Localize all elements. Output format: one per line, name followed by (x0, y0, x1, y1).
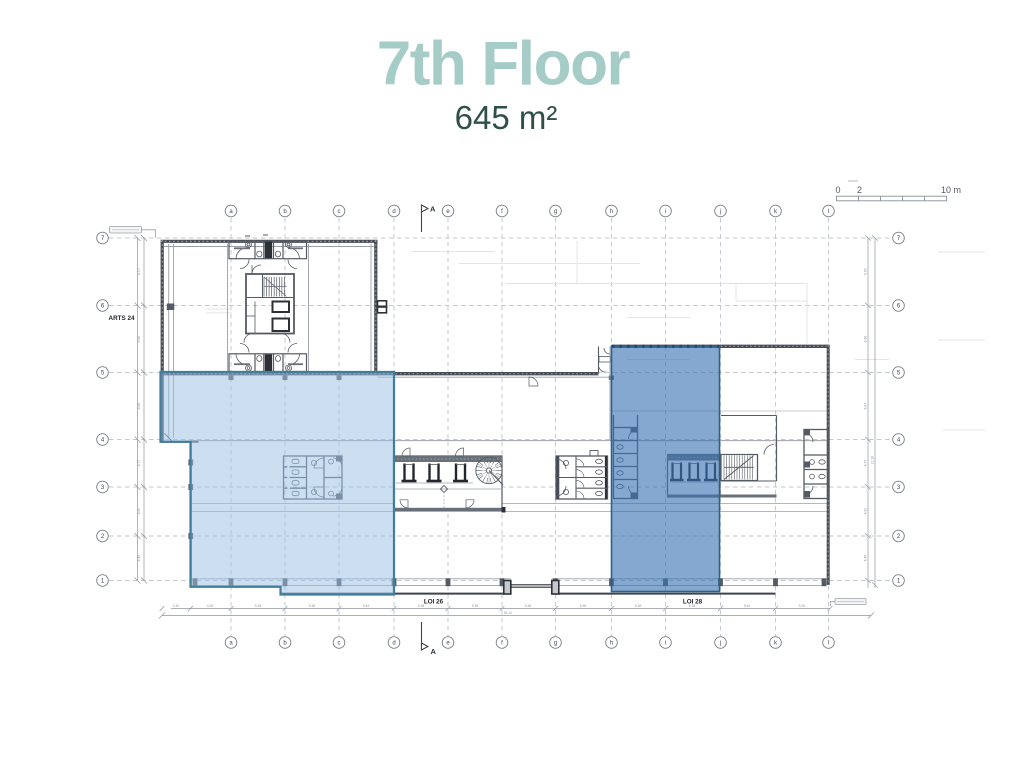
svg-text:h: h (610, 209, 613, 215)
svg-text:5.38: 5.38 (255, 604, 262, 608)
svg-text:6.67: 6.67 (864, 403, 868, 410)
svg-text:4.90: 4.90 (864, 508, 868, 515)
svg-text:4.90: 4.90 (137, 508, 141, 515)
svg-text:ARTS 24: ARTS 24 (109, 315, 135, 322)
svg-text:l: l (828, 641, 829, 647)
svg-text:LOI 28: LOI 28 (683, 599, 703, 606)
svg-text:i: i (665, 209, 666, 215)
svg-text:c: c (338, 641, 341, 647)
svg-text:j: j (719, 641, 721, 647)
svg-text:5.30: 5.30 (799, 604, 806, 608)
svg-text:5.38: 5.38 (472, 604, 479, 608)
svg-text:5.38: 5.38 (525, 604, 532, 608)
svg-text:8.10: 8.10 (137, 268, 141, 275)
svg-text:5.44: 5.44 (363, 604, 370, 608)
svg-text:l: l (828, 209, 829, 215)
svg-text:4.45: 4.45 (137, 555, 141, 562)
svg-text:4.45: 4.45 (864, 555, 868, 562)
svg-text:c: c (338, 209, 341, 215)
svg-text:6.67: 6.67 (864, 268, 868, 275)
svg-text:21.26: 21.26 (871, 456, 875, 465)
svg-text:A: A (431, 647, 437, 656)
svg-text:2: 2 (857, 185, 862, 195)
svg-text:6.66: 6.66 (137, 336, 141, 343)
svg-text:A: A (430, 205, 436, 214)
svg-text:5.44: 5.44 (744, 604, 751, 608)
svg-text:d: d (392, 641, 395, 647)
svg-text:4.77: 4.77 (864, 460, 868, 467)
svg-text:6.66: 6.66 (137, 403, 141, 410)
svg-text:d: d (392, 209, 395, 215)
svg-text:7th Floor: 7th Floor (377, 30, 631, 99)
svg-text:0: 0 (835, 185, 840, 195)
svg-text:645 m²: 645 m² (455, 99, 558, 136)
svg-text:i: i (665, 641, 666, 647)
svg-text:6.66: 6.66 (864, 336, 868, 343)
svg-text:j: j (719, 209, 721, 215)
svg-text:5.38: 5.38 (309, 604, 316, 608)
svg-text:5.55: 5.55 (580, 604, 587, 608)
svg-text:54.10: 54.10 (504, 611, 513, 615)
svg-text:2.40: 2.40 (173, 604, 180, 608)
svg-text:g: g (554, 209, 557, 215)
svg-text:h: h (610, 641, 613, 647)
svg-text:4.77: 4.77 (137, 460, 141, 467)
svg-text:g: g (554, 641, 557, 647)
svg-text:5.38: 5.38 (635, 604, 642, 608)
svg-text:LOI 26: LOI 26 (424, 599, 444, 606)
svg-text:10 m: 10 m (941, 185, 961, 195)
svg-text:4.05: 4.05 (207, 604, 214, 608)
